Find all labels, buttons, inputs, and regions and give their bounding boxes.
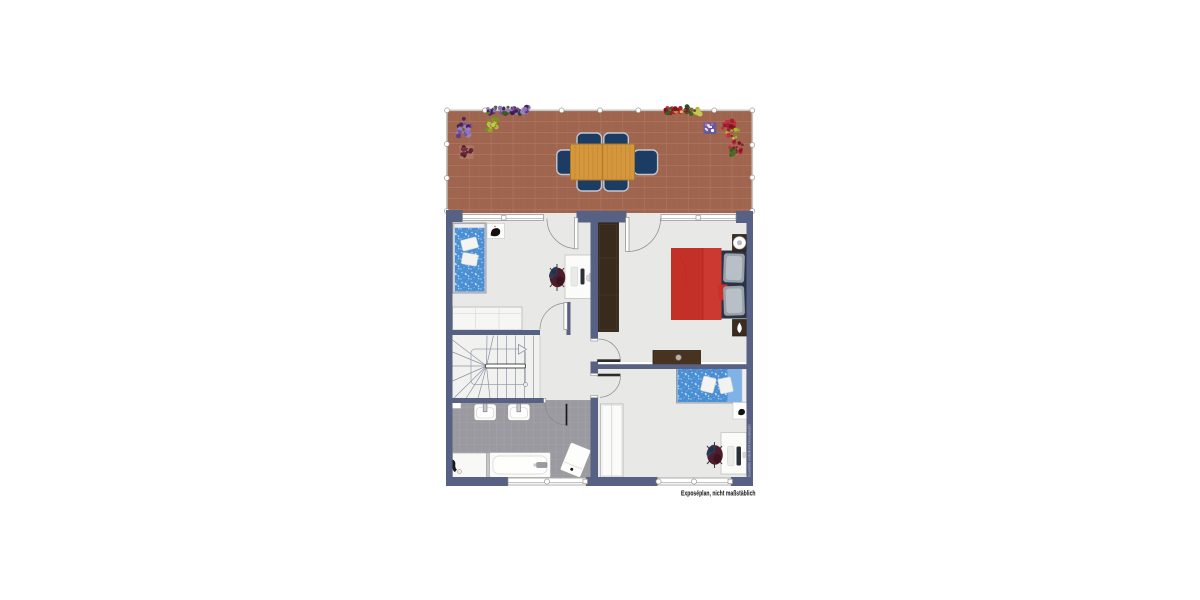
svg-text:Grundriss erstellt mit ImmoSke: Grundriss erstellt mit ImmoSketch xyxy=(748,424,752,477)
svg-text:Exposéplan, nicht maßstäblich: Exposéplan, nicht maßstäblich xyxy=(681,490,756,497)
